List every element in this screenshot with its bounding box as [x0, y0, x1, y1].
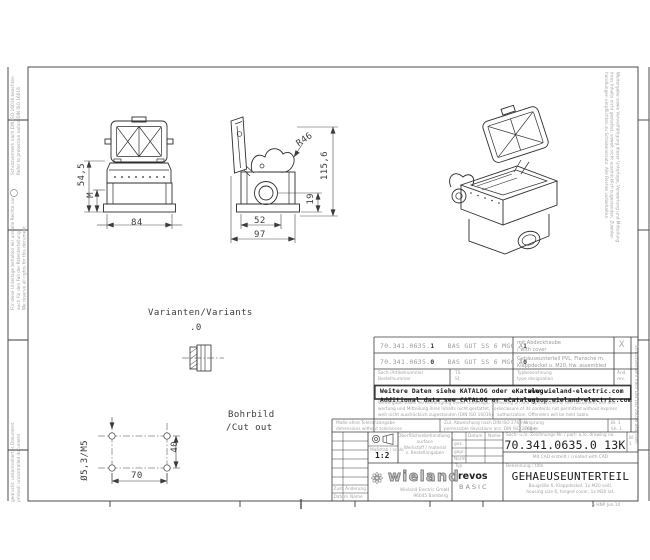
cutout-title: Bohrbild: [228, 410, 275, 420]
table-header-col4: Änd.rev.: [617, 371, 627, 383]
table-header-col1: Sach-/ArtikelnummerBestellnummer: [378, 371, 423, 383]
dim-side-height: 115,6: [320, 151, 330, 180]
side-view-drawing: [231, 117, 300, 212]
scale-value: 1:2: [375, 451, 389, 460]
dim-front-height: 54,5: [77, 163, 87, 186]
part-title-sub: Baugröße 6, Klappdeckel, 1x M20 seitl.ho…: [503, 484, 638, 496]
left-margin-note-b: Für diese Unterlage behalten wir uns all…: [11, 200, 28, 310]
wieland-logo-text: wieland: [388, 469, 460, 485]
flower-logo-icon: [372, 473, 383, 484]
grid-row-checked: gepr.: [454, 450, 465, 456]
rev-label-zust: Zust.: [334, 487, 345, 493]
legal-note-en: Passing on and reproduction of this docu…: [497, 401, 617, 418]
left-margin-note-a: Schutzvermerk nach DIN ISO 16016 beachte…: [11, 75, 23, 175]
dim-cutout-hole: Ø5,3/M5: [80, 440, 90, 481]
dim-side-width1: 52: [254, 216, 266, 226]
rev-label-datum: Datum: [334, 495, 349, 501]
grid-row-drawn: gez.: [454, 442, 463, 448]
dim-side-offset: 19: [306, 193, 316, 205]
sheet-cell: Bl.1: [629, 436, 635, 448]
projection-symbol-icon: [372, 434, 393, 445]
variants-label: Varianten/Variants: [148, 308, 253, 318]
right-margin-note: Weitergabe sowie Vervielfältigung dieser…: [602, 72, 619, 217]
docno-subline: Mit CAD erstellt / created with CAD: [503, 455, 638, 461]
table-row: 70.341.0635.0BAS GUT SS 6 MGC A0: [380, 358, 527, 366]
iso-view-drawing: [450, 99, 557, 254]
units-cell4: Bl. 1Sh. 1: [611, 421, 622, 433]
table-row-flag: X: [619, 340, 624, 350]
corner-note: A HNP Jun.10: [592, 503, 620, 509]
brand-subtext: Wieland Electric GmbH96045 Bamberg: [400, 488, 448, 500]
cutout-title2: /Cut out: [226, 423, 273, 433]
dim-cutout-width: 70: [131, 471, 143, 481]
dim-side-width2: 97: [254, 230, 266, 240]
dim-front-width: 84: [131, 218, 143, 228]
dim-front-m: M: [86, 192, 96, 198]
type-label: Typ: [455, 464, 462, 470]
material-cell: Oberflächenbehandlung /surface Werkstoff…: [398, 434, 452, 457]
units-cell1: Maße ohne Toleranzangabedimensions witho…: [336, 421, 402, 433]
front-view-drawing: [104, 117, 176, 212]
table-row: 70.341.0635.1BAS GUT SS 6 MGC A1: [380, 342, 527, 350]
left-margin-note-c: gedruckt: unkontrolliertes Dokumentprint…: [11, 430, 23, 502]
part-title: GEHAEUSEUNTERTEIL: [503, 470, 638, 483]
dim-cutout-height: 40: [170, 441, 180, 453]
series-name: revos: [458, 471, 488, 482]
title-label: Benennung / title: [506, 464, 543, 470]
variants-value: .0: [190, 323, 202, 333]
rev-label-aenderung: Änderung: [345, 487, 366, 493]
units-cell3: Ursprungorigin: [524, 421, 544, 433]
table-row-desc: Gehäuseunterteil PVL, Flansche m.Klappde…: [517, 356, 606, 369]
table-row-desc: mit Abdeckhaube/ with cover: [517, 340, 561, 353]
grid-header-date: Datum: [468, 434, 483, 440]
rev-label-name: Name: [350, 495, 363, 501]
table-header-col3: Typbezeichnungtype designation: [517, 371, 553, 383]
grid-header-name: Name: [488, 434, 501, 440]
table-header-col2: TSSt.: [455, 371, 461, 383]
variants-part-drawing: [182, 345, 224, 371]
series-name2: BASIC: [459, 483, 489, 491]
document-number: 70.341.0635.0 13K: [503, 438, 627, 452]
technical-drawing-page: Schutzvermerk nach DIN ISO 16016 beachte…: [0, 0, 650, 560]
legal-note-de: Weitergabe sowie Vervielfältigung dieser…: [378, 401, 499, 418]
grid-row-norm: Norm: [454, 457, 466, 463]
